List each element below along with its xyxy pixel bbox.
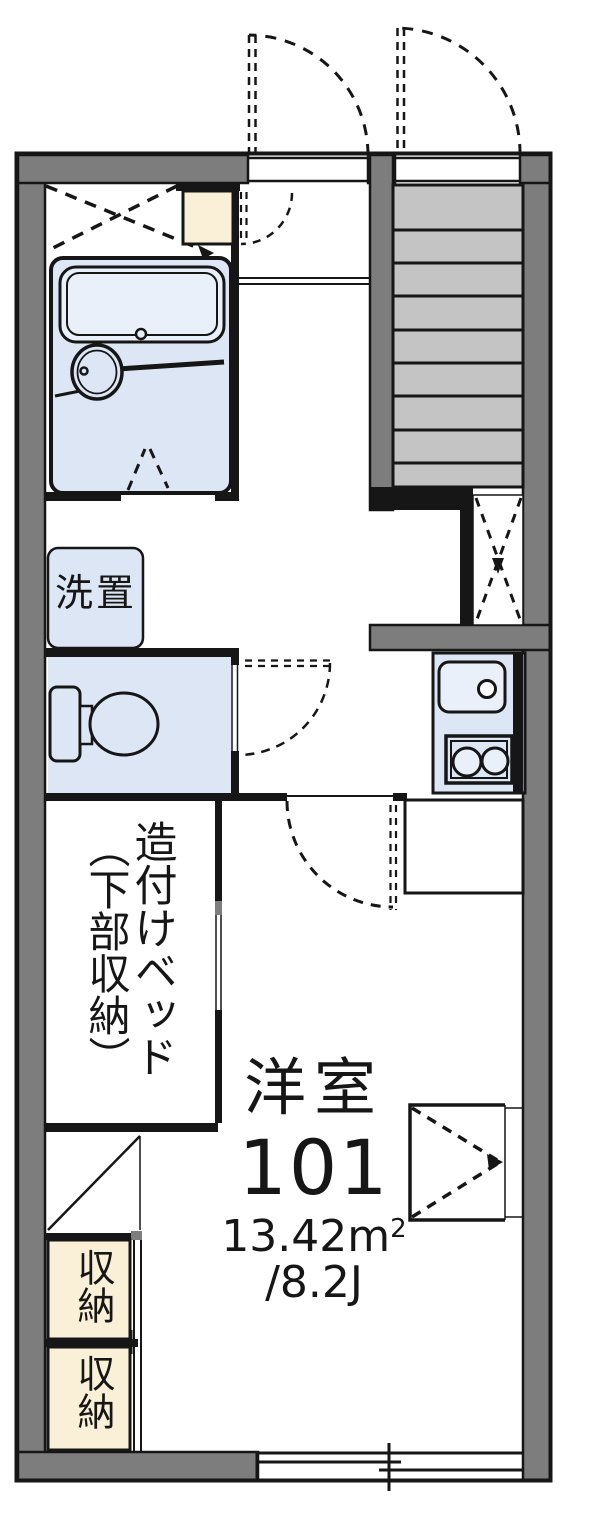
room-door-swing xyxy=(287,801,396,910)
toilet-room xyxy=(45,648,330,801)
sink-drain xyxy=(479,681,496,698)
room-name-label: 洋室 xyxy=(214,1056,414,1120)
heater-door-swing xyxy=(241,192,292,244)
stairs-bottom-wall xyxy=(370,487,473,510)
toilet-door-swing xyxy=(238,661,330,756)
bed-label-line1: 造付けベッド xyxy=(126,820,174,1078)
storage-label-1: 収納 xyxy=(66,1248,112,1324)
stove-burner-left xyxy=(453,748,481,776)
bathroom xyxy=(45,183,370,501)
mid-right-wall xyxy=(370,625,550,650)
stove-burner-right xyxy=(482,748,508,774)
sloped-ceiling-corner xyxy=(48,1136,140,1230)
stair-shaft-wall xyxy=(370,155,393,510)
room-number-label: 101 xyxy=(214,1128,414,1207)
bay-counter xyxy=(410,1105,523,1220)
entrance-door-swing xyxy=(249,35,368,155)
fridge-space xyxy=(405,800,523,893)
square-meter-sup: 2 xyxy=(390,1214,407,1244)
top-wall-right xyxy=(520,155,550,183)
sliding-window xyxy=(256,1443,523,1491)
toilet-tank xyxy=(50,687,80,761)
bottom-wall-left xyxy=(18,1452,258,1480)
washer-label: 洗置 xyxy=(48,574,144,614)
floor-plan: 洗置 造付けベッド （下部収納） 収納 収納 洋室 101 13.42m2 /8… xyxy=(0,0,606,1517)
stairs-door-swing xyxy=(398,28,521,155)
bed-foot-wall xyxy=(45,1123,218,1132)
room-tatami-label: /8.2J xyxy=(214,1260,414,1306)
top-wall-left xyxy=(18,155,248,183)
toilet-bowl xyxy=(90,693,158,755)
left-wall xyxy=(18,155,45,1480)
tub-drain xyxy=(136,329,146,339)
understairs-closet xyxy=(460,495,523,625)
bed-partition-upper xyxy=(215,801,222,915)
bed-label-line2: （下部収納） xyxy=(82,826,128,1078)
water-heater xyxy=(183,191,233,244)
storage-label-2: 収納 xyxy=(66,1354,112,1430)
kitchen xyxy=(433,653,525,793)
closet-left-wall xyxy=(460,495,473,625)
right-wall xyxy=(523,155,550,1480)
staircase xyxy=(393,185,523,487)
room-area-label: 13.42m2 xyxy=(214,1214,414,1260)
